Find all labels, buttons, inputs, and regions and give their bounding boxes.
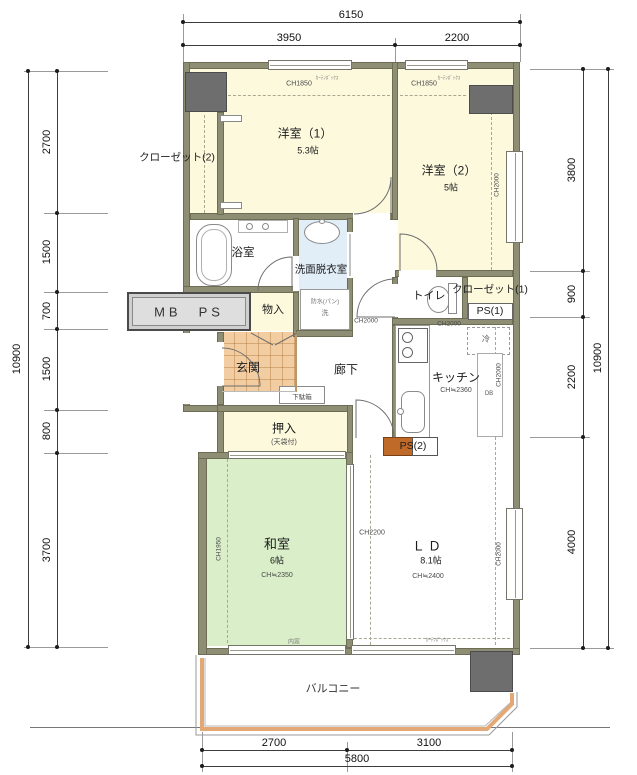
dim-bottom-seg2: 3100	[417, 737, 441, 749]
label-kitchen-ch-top: CH2000	[437, 321, 461, 328]
label-corridor: 廊下	[334, 361, 358, 378]
dim-tick	[26, 645, 30, 649]
label-ld-curtain: ｶｰﾃﾝﾎﾞｯｸｽ	[426, 637, 449, 644]
western2-side-window	[506, 151, 523, 243]
label-western1-curtain: ｶｰﾃﾝﾎﾞｯｸｽ	[316, 75, 339, 82]
label-kitchen-ch-side: CH2000	[496, 363, 503, 387]
bath-faucet-1	[246, 223, 253, 230]
wall-closet2	[217, 112, 224, 215]
wall-under-washroom	[296, 330, 353, 337]
ext-line	[44, 329, 108, 330]
closet2-hanger-top	[220, 115, 242, 122]
label-ps2: PS(2)	[400, 440, 427, 452]
dim-tick	[181, 43, 185, 47]
label-ps1: PS(1)	[477, 305, 504, 317]
dim-tick	[581, 269, 585, 273]
dim-tick	[181, 20, 185, 24]
dim-top-overall: 6150	[339, 9, 363, 21]
western2-window	[405, 60, 468, 70]
label-corridor-ch: CH2000	[354, 318, 378, 325]
toilet-door-arc	[357, 279, 395, 317]
dim-line-top-overall	[183, 22, 520, 23]
dim-right-overall: 10900	[592, 343, 604, 374]
dim-line-top-segments	[183, 45, 520, 46]
genkan-bottom-line	[222, 391, 296, 392]
washitsu-window	[228, 645, 346, 655]
dim-tick	[518, 43, 522, 47]
label-bath: 浴室	[232, 244, 255, 260]
western2-curtain-line	[400, 95, 466, 96]
washitsu-dashed-line	[227, 459, 228, 643]
ext-line	[44, 410, 108, 411]
label-western2-ch-side: CH2000	[494, 173, 501, 197]
dim-tick	[393, 43, 397, 47]
dim-line-left-segments	[57, 71, 58, 647]
dim-tick	[55, 645, 59, 649]
label-oshiire-note: (天袋付)	[271, 437, 297, 447]
bath-faucet-2	[262, 223, 269, 230]
ext-line	[24, 71, 108, 72]
stove-burner-1	[402, 332, 413, 343]
dim-line-right-overall	[608, 69, 609, 648]
label-db: DB	[485, 391, 493, 397]
label-ld-ch-side: CH2000	[496, 542, 503, 566]
label-storage: 物入	[262, 301, 284, 317]
ext-line	[44, 453, 108, 454]
dim-right-seg2: 900	[566, 285, 578, 303]
western2-door-opening	[399, 270, 436, 277]
western1-door-opening	[353, 213, 390, 220]
label-western1: 洋室（1）	[278, 125, 333, 142]
genkan-step-line	[295, 332, 297, 392]
dim-left-seg3: 700	[41, 302, 53, 320]
label-washpan: 防水(パン)	[311, 297, 339, 306]
label-closet1: クローゼット(1)	[452, 282, 528, 297]
label-western2-ch: CH1850	[411, 81, 437, 88]
label-mbps: MB PS	[154, 302, 224, 321]
dim-right-seg3: 2200	[566, 365, 578, 389]
ext-line	[530, 69, 614, 70]
dim-left-overall: 10900	[11, 344, 23, 375]
dim-tick	[581, 315, 585, 319]
dim-tick	[510, 748, 514, 752]
dim-tick	[26, 69, 30, 73]
ld-window	[351, 645, 456, 655]
dim-left-seg4: 1500	[41, 357, 53, 381]
label-washitsu-size: 6帖	[270, 554, 284, 567]
dim-line-bottom-segments	[202, 750, 512, 751]
pillar-top-right	[469, 85, 513, 114]
dim-right-seg4: 4000	[566, 530, 578, 554]
wash-basin	[304, 221, 340, 244]
dim-tick	[55, 408, 59, 412]
label-ld: ＬＤ	[412, 536, 444, 555]
washroom-door-opening	[347, 232, 353, 278]
label-ld-ch-mid: CH2200	[359, 530, 385, 537]
label-balcony: バルコニー	[306, 680, 361, 696]
entrance-door-opening	[217, 342, 224, 386]
oshiire-sliding-doors	[228, 451, 346, 459]
pillar-top-left	[185, 72, 227, 112]
label-washitsu-ch: CH≒2350	[261, 571, 293, 579]
wall-oshiire-top	[217, 405, 350, 412]
label-closet2: クローゼット(2)	[139, 150, 215, 165]
label-oshiire: 押入	[272, 420, 296, 437]
washitsu-ld-sliding-doors	[346, 464, 354, 640]
dim-tick	[200, 764, 204, 768]
dim-left-seg2: 1500	[41, 240, 53, 264]
wall-washitsu-left	[198, 452, 207, 655]
stove-burner-2	[402, 347, 413, 358]
site-boundary-line	[30, 727, 610, 728]
dim-tick	[518, 20, 522, 24]
dim-tick	[510, 764, 514, 768]
dim-tick	[581, 435, 585, 439]
ld-side-window	[506, 508, 523, 600]
ext-line	[44, 292, 108, 293]
wall-oshiire-right	[347, 405, 353, 458]
floor-plan: クローゼット(2) 洋室（1） 5.3帖 CH1850 ｶｰﾃﾝﾎﾞｯｸｽ 洋室…	[0, 0, 637, 775]
label-uchimado: 内窓	[288, 637, 300, 646]
label-washpan-2: 洗	[322, 308, 329, 318]
ext-line	[395, 38, 396, 62]
label-western2-curtain: ｶｰﾃﾝﾎﾞｯｸｽ	[438, 75, 461, 82]
dim-line-right-segments	[583, 69, 584, 648]
label-kitchen: キッチン	[432, 369, 480, 386]
kitchen-tap	[397, 408, 404, 415]
ext-line	[44, 213, 108, 214]
dim-left-seg1: 2700	[41, 130, 53, 154]
dim-tick	[55, 290, 59, 294]
ext-line	[24, 647, 108, 648]
label-ld-size: 8.1帖	[420, 554, 442, 567]
label-washitsu: 和室	[264, 534, 290, 553]
wash-basin-tap	[319, 219, 325, 224]
bathtub-inner	[201, 229, 227, 281]
dim-tick	[55, 211, 59, 215]
dim-left-seg5: 800	[41, 422, 53, 440]
western1-curtain-line	[228, 95, 390, 96]
dim-tick	[55, 69, 59, 73]
label-kitchen-ch: CH≒2360	[440, 386, 472, 394]
dim-tick	[606, 646, 610, 650]
western1-window	[268, 60, 352, 70]
label-toilet: トイレ	[413, 287, 446, 303]
dim-tick	[55, 327, 59, 331]
label-ld-ch: CH≒2400	[412, 572, 444, 580]
dim-right-seg1: 3800	[566, 158, 578, 182]
dim-line-left-overall	[28, 71, 29, 647]
western2-side-dashed-line	[491, 112, 492, 270]
ext-line	[530, 648, 614, 649]
dim-top-seg2: 2200	[445, 32, 469, 44]
wall-oshiire-left	[217, 405, 224, 459]
dim-tick	[581, 646, 585, 650]
dim-bottom-overall: 5800	[345, 753, 369, 765]
closet2-hanger-bottom	[220, 202, 242, 209]
label-western2: 洋室（2）	[422, 162, 477, 179]
label-washitsu-ch-side: CH1950	[216, 537, 223, 561]
dim-tick	[345, 748, 349, 752]
dim-tick	[581, 67, 585, 71]
label-washroom: 洗面脱衣室	[295, 262, 348, 277]
pillar-balcony	[470, 651, 513, 692]
dim-left-seg6: 3700	[41, 538, 53, 562]
dim-tick	[200, 748, 204, 752]
ld-mid-dashed-line	[370, 455, 371, 645]
label-western1-size: 5.3帖	[297, 144, 319, 157]
wall-western1-western2	[392, 62, 398, 220]
toilet-door-opening	[392, 284, 398, 317]
label-genkan: 玄関	[236, 359, 260, 376]
kitchen-sink	[401, 391, 425, 433]
label-shoebox: 下駄箱	[292, 391, 312, 401]
dim-top-seg1: 3950	[277, 32, 301, 44]
ld-door-arc	[356, 400, 394, 438]
dim-tick	[55, 451, 59, 455]
label-western1-ch: CH1850	[286, 81, 312, 88]
label-refrigerator: 冷	[482, 334, 490, 345]
entrance-alcove	[176, 333, 217, 404]
dim-bottom-seg1: 2700	[262, 737, 286, 749]
dim-line-bottom-overall	[202, 766, 512, 767]
label-western2-size: 5帖	[444, 181, 458, 194]
dim-tick	[606, 67, 610, 71]
